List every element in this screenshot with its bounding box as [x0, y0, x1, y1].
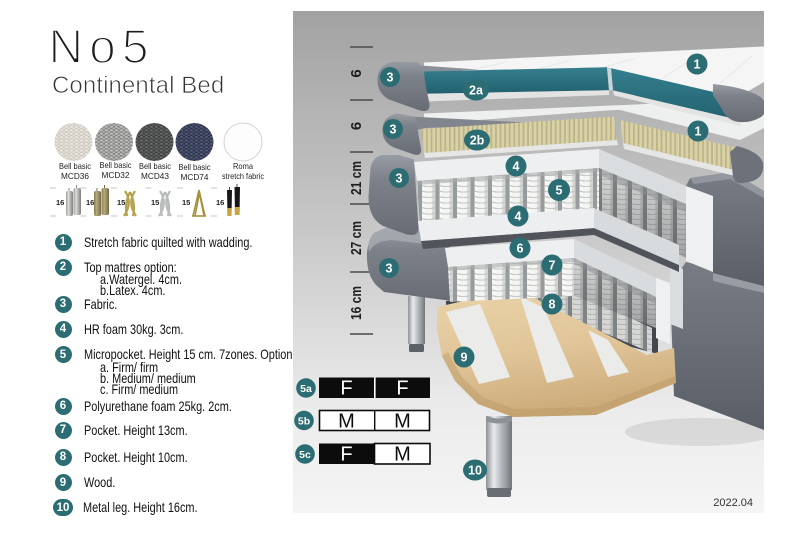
svg-text:MCD74: MCD74: [181, 172, 209, 182]
svg-text:5: 5: [556, 184, 563, 198]
svg-text:3: 3: [390, 123, 397, 137]
svg-text:Bell basic: Bell basic: [100, 160, 132, 170]
svg-text:MCD43: MCD43: [141, 171, 169, 181]
svg-text:15: 15: [117, 198, 125, 207]
svg-text:MCD36: MCD36: [61, 171, 89, 181]
svg-text:stretch fabric: stretch fabric: [222, 171, 264, 181]
svg-text:15: 15: [151, 198, 159, 207]
svg-text:2022.04: 2022.04: [713, 497, 753, 509]
svg-text:3: 3: [396, 172, 403, 186]
svg-text:MCD32: MCD32: [102, 170, 130, 180]
svg-text:Bell basic: Bell basic: [179, 162, 211, 172]
svg-text:4: 4: [513, 160, 520, 174]
svg-text:6: 6: [517, 242, 524, 256]
svg-text:10: 10: [468, 464, 482, 478]
svg-text:3: 3: [387, 71, 394, 85]
svg-text:16: 16: [216, 198, 224, 207]
svg-text:M: M: [394, 444, 411, 466]
svg-text:F: F: [340, 444, 352, 466]
svg-text:Roma: Roma: [233, 161, 253, 171]
svg-text:M: M: [338, 411, 355, 433]
svg-text:4: 4: [515, 210, 522, 224]
svg-text:5c: 5c: [299, 449, 311, 461]
svg-text:5a: 5a: [300, 383, 312, 395]
svg-text:27 cm: 27 cm: [348, 221, 365, 255]
svg-text:F: F: [340, 378, 352, 400]
svg-text:16 cm: 16 cm: [348, 286, 365, 320]
svg-text:Bell basic: Bell basic: [59, 161, 91, 171]
svg-text:5b: 5b: [298, 416, 310, 428]
svg-text:F: F: [396, 378, 408, 400]
svg-text:8: 8: [549, 298, 556, 312]
svg-text:16: 16: [56, 198, 64, 207]
svg-text:6: 6: [348, 69, 365, 77]
svg-text:21 cm: 21 cm: [348, 161, 365, 195]
svg-text:16: 16: [86, 198, 94, 207]
svg-text:Bell basic: Bell basic: [139, 161, 171, 171]
svg-text:1: 1: [695, 125, 702, 139]
svg-text:9: 9: [461, 351, 468, 365]
svg-text:7: 7: [549, 259, 556, 273]
svg-text:3: 3: [386, 262, 393, 276]
svg-text:6: 6: [348, 122, 365, 130]
svg-text:2b: 2b: [470, 134, 485, 148]
svg-text:2a: 2a: [469, 84, 484, 98]
svg-text:15: 15: [182, 198, 190, 207]
svg-text:M: M: [394, 411, 411, 433]
svg-text:1: 1: [694, 58, 701, 72]
